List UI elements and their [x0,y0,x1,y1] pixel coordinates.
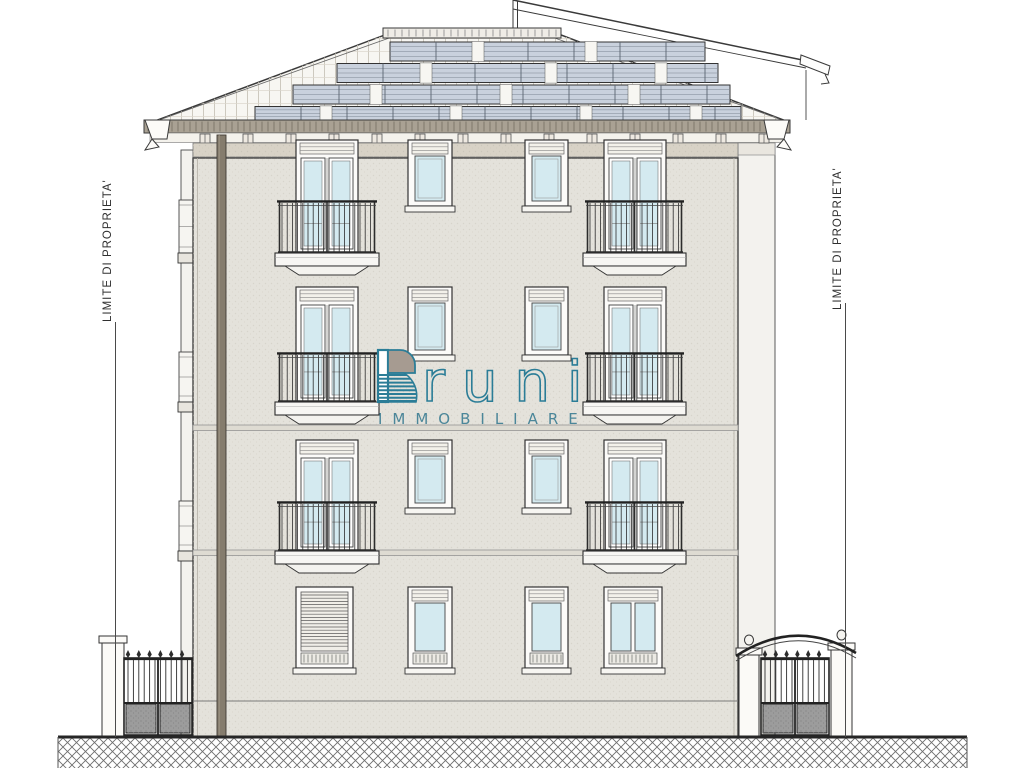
logo-svg: runi IMMOBILIARE [376,344,596,430]
downspout-pipe-body [217,135,226,737]
gate-spike [806,650,810,658]
gutter-end-right [764,120,789,139]
pillar-body [102,643,124,737]
ground-window [405,587,455,674]
ground-strip-hatch [58,737,967,768]
balcony-apron [593,266,676,275]
gutter-end-left [145,120,170,139]
gate-spike [126,650,130,658]
balcony-apron [285,266,369,275]
arch-finial-right [837,630,846,640]
rafter-tail [716,134,726,143]
solar-panel-row [390,41,705,61]
logo-brand-text: runi [422,350,596,415]
ground-window [522,587,571,674]
balcony-slab [583,253,686,266]
balcony-slab [275,253,379,266]
rafter-tail [458,134,468,143]
right-side-cornice [738,143,775,155]
elevation-drawing: LIMITE DI PROPRIETA' LIMITE DI PROPRIETA… [0,0,1024,768]
pillar-body [831,650,852,737]
background-gutter-hook [821,74,829,84]
arch-finial-left [745,635,754,645]
window [522,440,571,514]
rafter-tail [286,134,296,143]
gate-spike [158,650,162,658]
window-guard-grill [413,653,447,664]
rafter-tail [200,134,210,143]
pillar-body [739,655,759,737]
gate-spike [169,650,173,658]
left-fence-gate [99,636,192,737]
ground-window-louvered [293,587,356,674]
rafter-tail [372,134,382,143]
window-guard-grill [530,653,563,664]
window [405,140,455,212]
solar-panel-row [255,106,741,121]
gate-leaves [124,650,192,735]
rafter-tail [501,134,511,143]
gate-spike [784,650,788,658]
window [522,140,571,212]
gate-spike [147,650,151,658]
roller-shutter [301,592,348,651]
gate-spike [817,650,821,658]
property-boundary-label-left: LIMITE DI PROPRIETA' [102,162,114,322]
left-side-balcony [178,501,194,561]
rafter-tail [673,134,683,143]
rafter-tail [587,134,597,143]
rafter-tail [243,134,253,143]
gate-spike [795,650,799,658]
left-side-balcony [178,352,194,412]
ground-hatch-strip [58,737,967,768]
right-arched-gate [736,630,856,737]
balcony-slab [583,551,686,564]
balcony-slab [583,402,686,415]
logo-letter-b-icon [378,350,417,402]
background-gutter-end [800,55,830,75]
downspout-pipe [217,135,226,737]
logo-subtitle-text: IMMOBILIARE [378,410,588,428]
gate-spike [137,650,141,658]
pillar-cap [99,636,127,643]
balcony-apron [593,415,676,424]
ground-window [601,587,665,674]
roof-eave-and-cornice [144,120,791,157]
balcony-slab [275,402,379,415]
window [405,440,455,514]
balcony-apron [593,564,676,573]
solar-panel-row [293,84,730,104]
watermark-logo: runi IMMOBILIARE [376,344,596,430]
balcony-apron [285,415,369,424]
solar-panel-row [337,63,718,83]
balcony-slab [275,551,379,564]
property-boundary-label-right: LIMITE DI PROPRIETA' [832,170,844,310]
left-side-balcony [178,200,194,263]
balcony-apron [285,564,369,573]
eave-fascia [144,120,790,133]
